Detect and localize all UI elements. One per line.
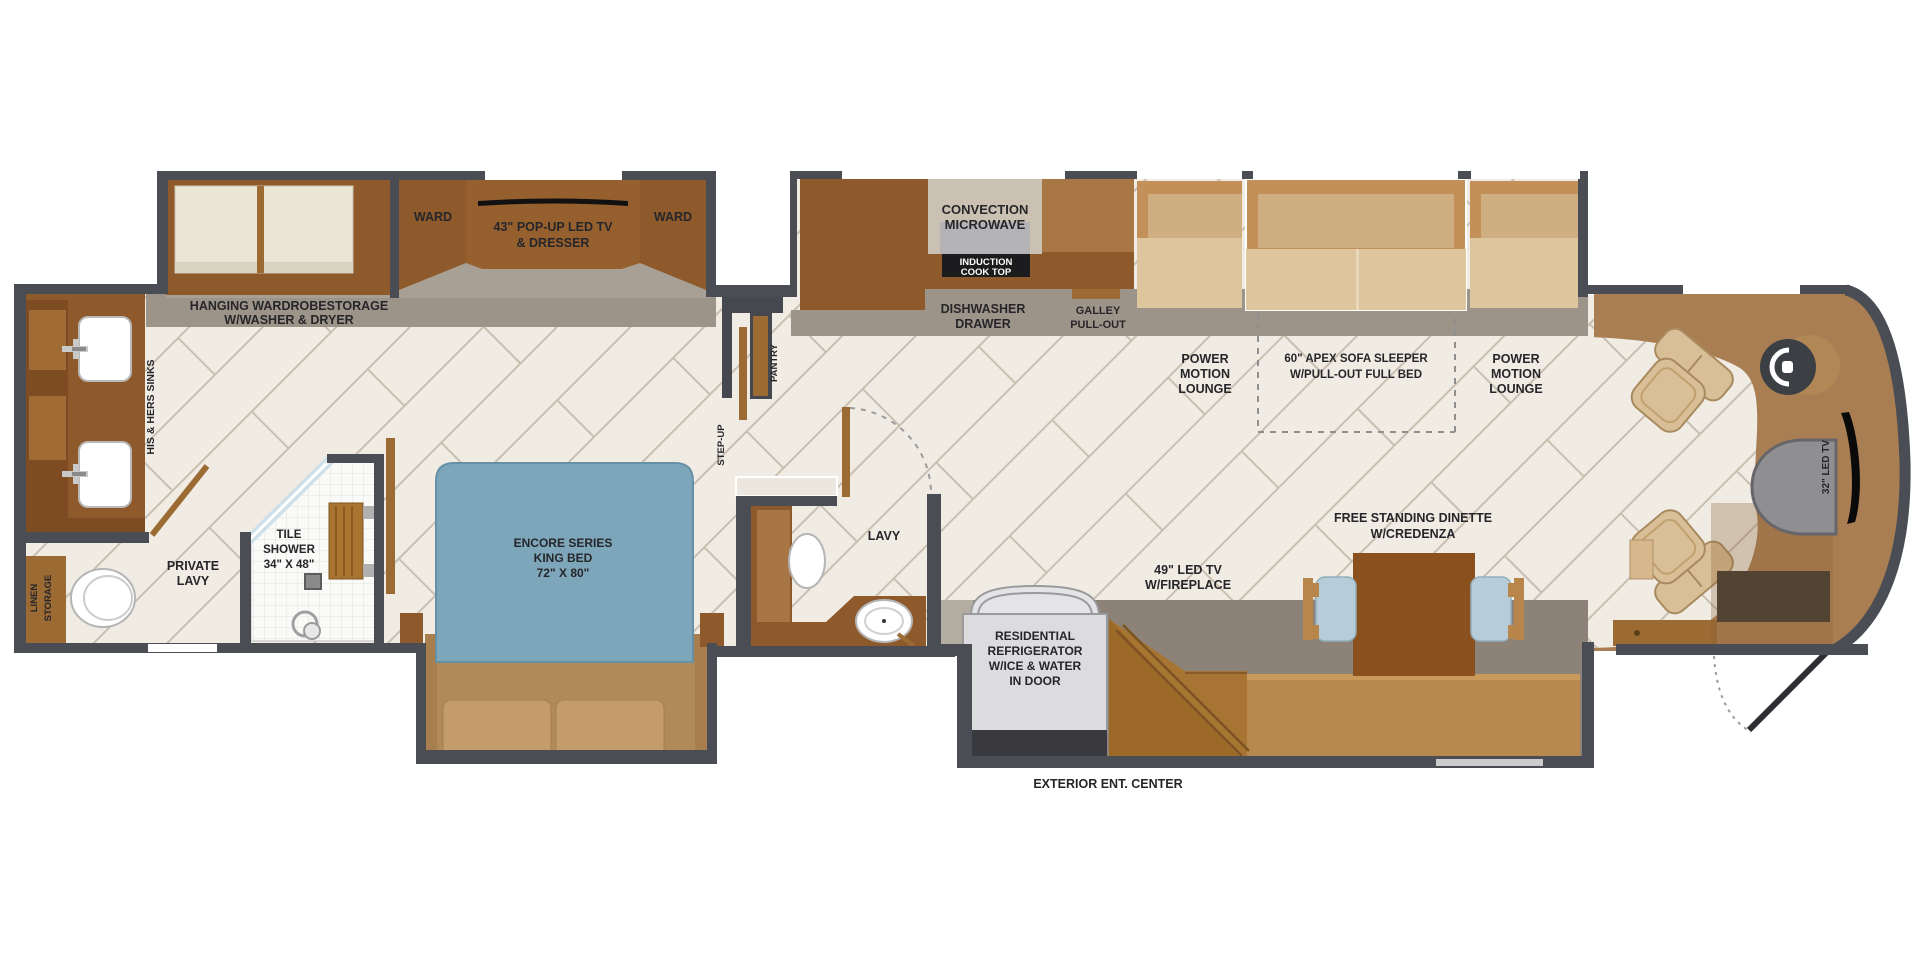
svg-text:60" APEX SOFA SLEEPER: 60" APEX SOFA SLEEPER [1284, 353, 1428, 365]
svg-text:STORAGE: STORAGE [43, 575, 54, 622]
svg-text:ENCORE SERIES: ENCORE SERIES [514, 536, 613, 550]
svg-text:WARD: WARD [654, 210, 692, 224]
svg-text:PANTRY: PANTRY [769, 343, 780, 382]
svg-text:STEP-UP: STEP-UP [716, 424, 727, 466]
svg-text:CONVECTION: CONVECTION [942, 202, 1029, 217]
svg-text:HANGING WARDROBESTORAGE: HANGING WARDROBESTORAGE [190, 299, 388, 313]
svg-text:W/PULL-OUT FULL BED: W/PULL-OUT FULL BED [1290, 369, 1422, 381]
svg-text:LINEN: LINEN [29, 584, 40, 613]
svg-text:MOTION: MOTION [1491, 367, 1541, 381]
svg-text:KING BED: KING BED [534, 551, 593, 565]
svg-text:32" LED TV: 32" LED TV [1821, 440, 1832, 495]
svg-text:& DRESSER: & DRESSER [517, 236, 590, 250]
svg-text:GALLEY: GALLEY [1076, 305, 1121, 317]
svg-text:SHOWER: SHOWER [263, 544, 315, 556]
svg-text:DISHWASHER: DISHWASHER [941, 302, 1026, 316]
svg-text:MICROWAVE: MICROWAVE [945, 217, 1026, 232]
svg-text:IN DOOR: IN DOOR [1009, 674, 1061, 688]
svg-text:POWER: POWER [1181, 352, 1228, 366]
svg-text:FREE STANDING DINETTE: FREE STANDING DINETTE [1334, 511, 1492, 525]
svg-text:W/CREDENZA: W/CREDENZA [1371, 527, 1456, 541]
svg-text:POWER: POWER [1492, 352, 1539, 366]
svg-text:LOUNGE: LOUNGE [1489, 382, 1542, 396]
svg-text:W/ICE & WATER: W/ICE & WATER [989, 659, 1082, 673]
svg-text:49" LED TV: 49" LED TV [1154, 563, 1222, 577]
svg-text:WARD: WARD [414, 210, 452, 224]
svg-text:LAVY: LAVY [868, 529, 901, 543]
svg-text:LOUNGE: LOUNGE [1178, 382, 1231, 396]
svg-text:COOK TOP: COOK TOP [961, 267, 1012, 278]
svg-text:EXTERIOR ENT. CENTER: EXTERIOR ENT. CENTER [1033, 777, 1182, 791]
svg-text:REFRIGERATOR: REFRIGERATOR [988, 644, 1083, 658]
svg-text:72" X 80": 72" X 80" [537, 566, 590, 580]
svg-text:DRAWER: DRAWER [955, 317, 1011, 331]
svg-text:PRIVATE: PRIVATE [167, 559, 219, 573]
svg-text:HIS & HERS SINKS: HIS & HERS SINKS [145, 359, 157, 454]
svg-text:TILE: TILE [277, 529, 302, 541]
svg-text:RESIDENTIAL: RESIDENTIAL [995, 629, 1075, 643]
svg-text:W/WASHER & DRYER: W/WASHER & DRYER [224, 313, 353, 327]
svg-text:34" X 48": 34" X 48" [264, 559, 315, 571]
svg-text:MOTION: MOTION [1180, 367, 1230, 381]
svg-text:W/FIREPLACE: W/FIREPLACE [1145, 578, 1231, 592]
svg-text:43" POP-UP LED TV: 43" POP-UP LED TV [494, 220, 614, 234]
svg-text:PULL-OUT: PULL-OUT [1070, 319, 1126, 331]
svg-text:LAVY: LAVY [177, 574, 210, 588]
